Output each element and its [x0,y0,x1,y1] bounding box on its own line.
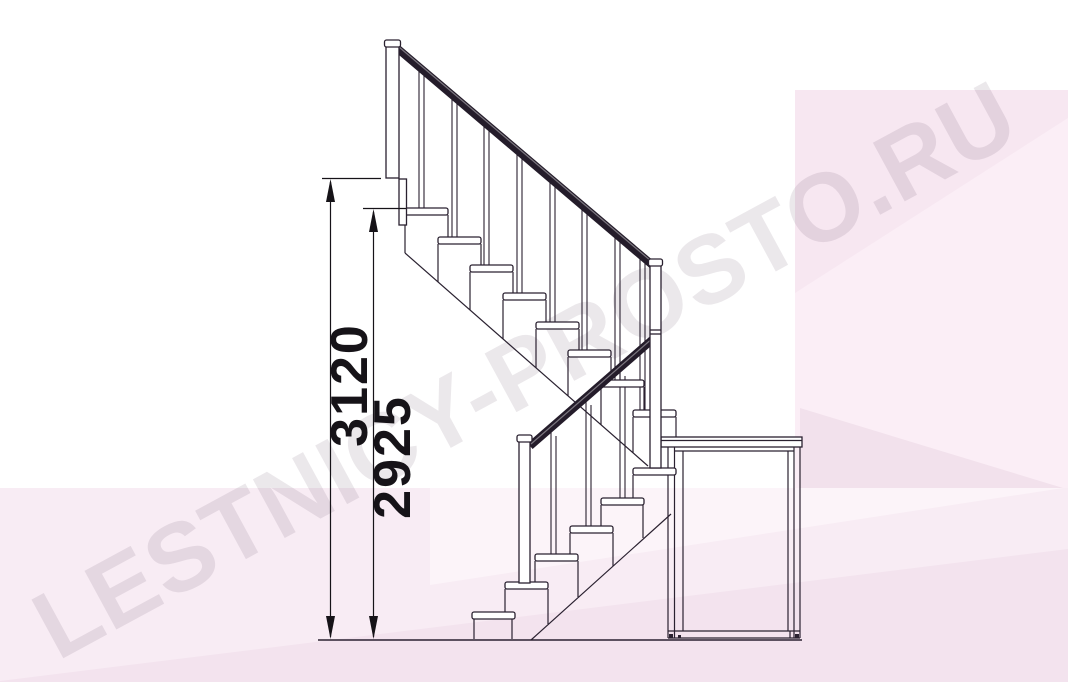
upper-handrail [398,47,658,269]
landing-frame [661,437,802,638]
lower-treads [472,468,676,619]
landing-platform [661,437,802,447]
arrow-up-3120 [326,179,335,202]
bottom-post [519,441,530,583]
arrow-down-3120 [326,616,335,639]
landing-post [399,179,407,225]
arrow-up-2925 [369,209,378,232]
arrow-down-2925 [369,616,378,639]
dimension-label-floor-to-top-step: 2925 [363,347,423,567]
diagram-canvas: LESTNICY-PROSTO.RU [0,0,1068,682]
central-post [650,265,661,468]
upper-treads [405,208,676,417]
staircase-line-art [0,0,1068,682]
top-post [386,46,399,178]
